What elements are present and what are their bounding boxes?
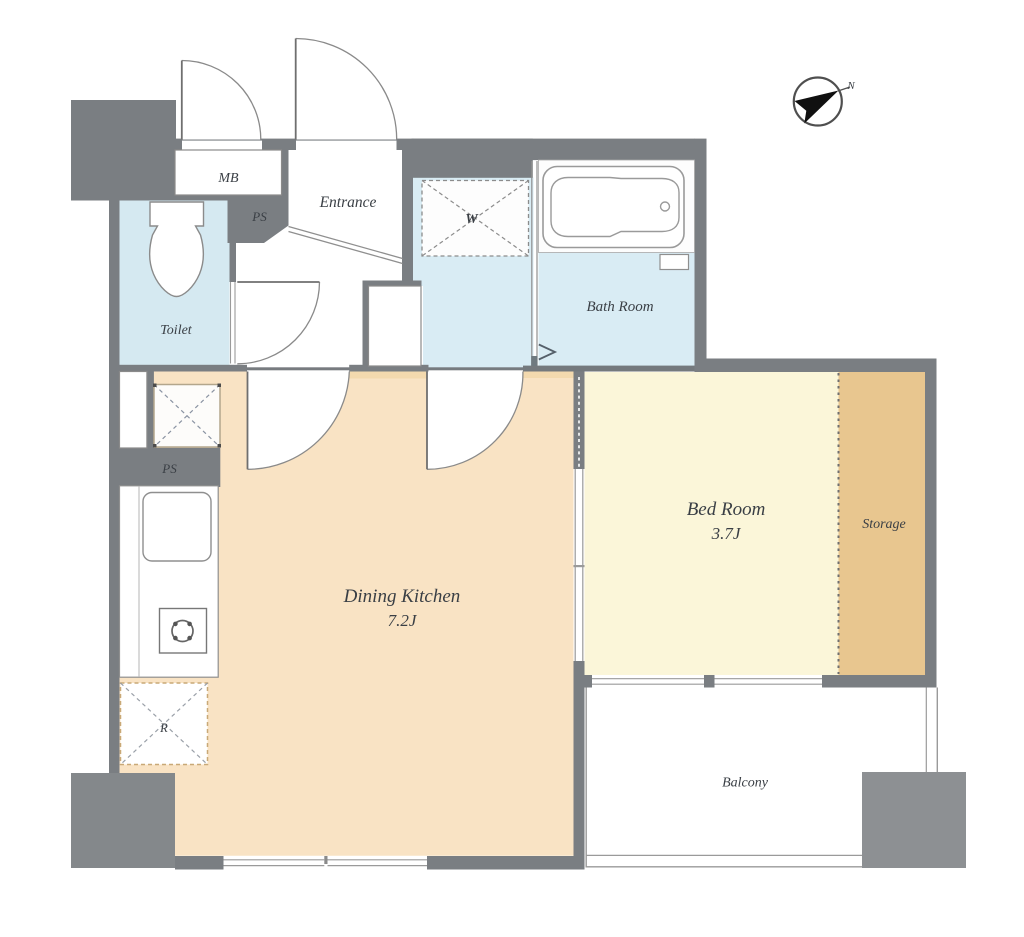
svg-text:Balcony: Balcony — [722, 776, 769, 791]
svg-text:MB: MB — [217, 171, 239, 186]
svg-text:R: R — [159, 721, 168, 735]
svg-text:Bath Room: Bath Room — [586, 299, 653, 315]
svg-text:Storage: Storage — [862, 517, 906, 532]
svg-text:W: W — [465, 212, 479, 227]
svg-text:Entrance: Entrance — [319, 194, 377, 211]
svg-text:Toilet: Toilet — [160, 323, 192, 338]
svg-text:3.7J: 3.7J — [711, 524, 742, 543]
svg-text:7.2J: 7.2J — [388, 611, 418, 630]
svg-text:PS: PS — [161, 461, 177, 476]
svg-text:Dining Kitchen: Dining Kitchen — [343, 586, 461, 607]
svg-text:Bed Room: Bed Room — [687, 499, 766, 520]
svg-text:PS: PS — [251, 209, 267, 224]
svg-text:N: N — [846, 80, 855, 92]
